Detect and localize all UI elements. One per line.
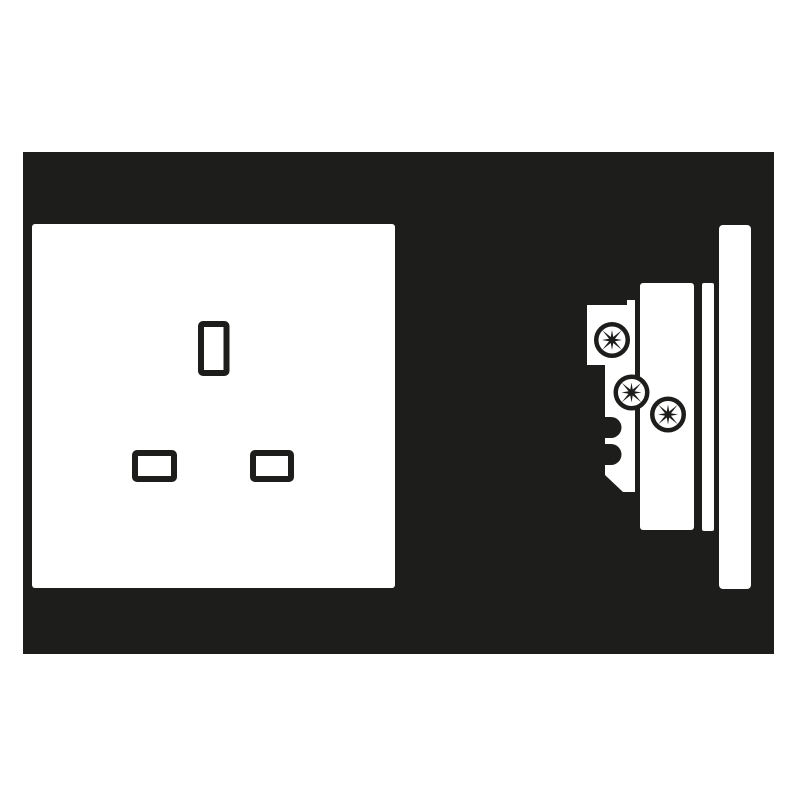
side-spacer-strip: [702, 283, 714, 531]
screw-star: [602, 330, 622, 350]
pozidriv-screw-icon: [652, 399, 684, 431]
illustration-canvas: [0, 0, 800, 800]
pozidriv-screw-icon: [616, 377, 648, 409]
side-faceplate-edge: [719, 225, 751, 589]
neutral-pin-slot: [253, 453, 291, 479]
screw-star: [622, 383, 642, 403]
earth-pin-slot: [201, 324, 227, 373]
screw-star: [658, 405, 678, 425]
socket-front-view: [32, 224, 395, 588]
socket-pictogram: [0, 0, 800, 800]
faceplate-front: [32, 224, 395, 588]
live-pin-slot: [135, 453, 174, 479]
pozidriv-screw-icon: [596, 324, 628, 356]
